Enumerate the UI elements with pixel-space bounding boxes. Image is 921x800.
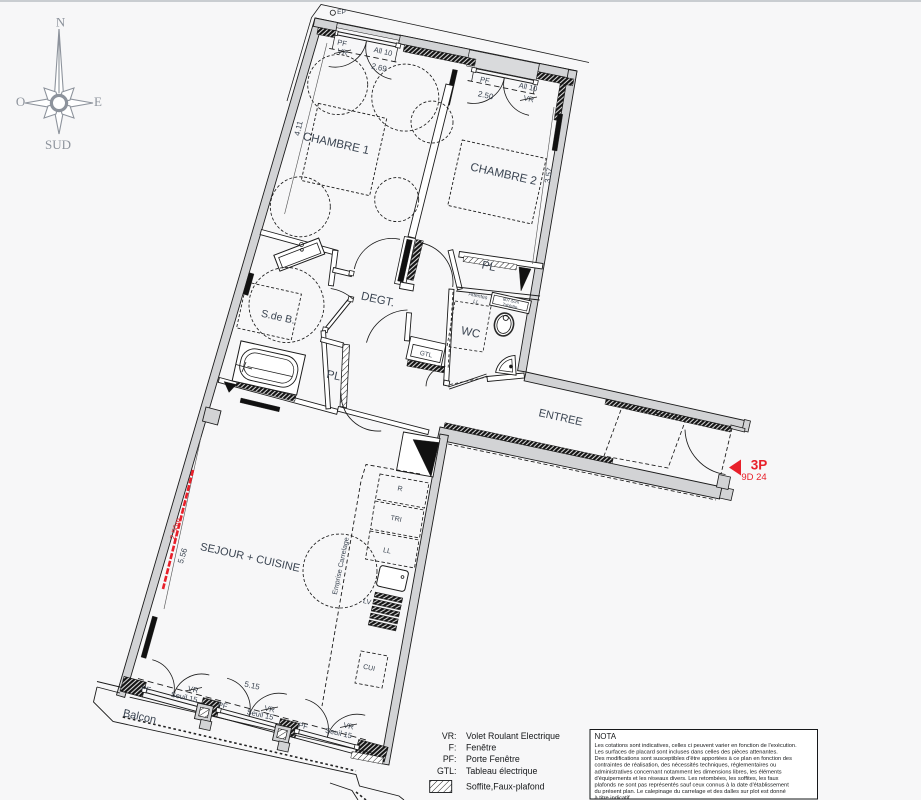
svg-text:9D 24: 9D 24 <box>741 472 766 483</box>
svg-text:Volet Roulant Electrique: Volet Roulant Electrique <box>466 731 560 741</box>
svg-text:3P: 3P <box>751 458 768 473</box>
svg-text:ENTREE: ENTREE <box>537 407 583 428</box>
svg-text:F:: F: <box>449 743 457 753</box>
svg-text:NOTA: NOTA <box>595 732 617 741</box>
svg-text:DEGT.: DEGT. <box>360 291 396 310</box>
svg-text:LL: LL <box>382 547 391 556</box>
svg-text:SEJOUR + CUISINE: SEJOUR + CUISINE <box>199 541 301 575</box>
svg-text:PL: PL <box>481 259 498 274</box>
svg-text:2.69: 2.69 <box>371 62 389 74</box>
svg-text:à titre indicatif.: à titre indicatif. <box>595 796 632 800</box>
svg-text:N: N <box>56 14 66 29</box>
svg-text:WC: WC <box>460 325 481 341</box>
svg-text:Les cotations sont indicatives: Les cotations sont indicatives, celles c… <box>595 743 798 749</box>
svg-text:TRI: TRI <box>390 515 403 524</box>
svg-text:Porte Fenêtre: Porte Fenêtre <box>466 754 520 764</box>
svg-text:Balcon: Balcon <box>122 707 157 726</box>
svg-text:S.de B.: S.de B. <box>260 308 296 327</box>
svg-text:Les surfaces de placard sont i: Les surfaces de placard sont incluses da… <box>595 750 779 756</box>
svg-text:E: E <box>94 94 102 109</box>
svg-text:5.15: 5.15 <box>244 680 262 692</box>
svg-text:d'équipements et les réseaux d: d'équipements et les réseaux divers. Les… <box>595 776 779 782</box>
svg-text:LV: LV <box>362 598 372 607</box>
svg-text:PF: PF <box>479 75 491 86</box>
svg-text:GTL:: GTL: <box>437 766 457 776</box>
svg-text:Des modifications sont suscept: Des modifications sont susceptibles d'êt… <box>595 756 793 762</box>
svg-text:plafonds ne sont pas représent: plafonds ne sont pas représentés sauf ce… <box>595 782 790 788</box>
svg-text:Fenêtre: Fenêtre <box>466 743 496 753</box>
svg-text:VR:: VR: <box>442 731 457 741</box>
svg-text:CHAMBRE 2: CHAMBRE 2 <box>469 161 538 188</box>
svg-text:EP: EP <box>337 9 346 16</box>
svg-text:CUI: CUI <box>362 664 375 673</box>
svg-text:5.56: 5.56 <box>176 547 189 565</box>
svg-text:R: R <box>397 485 403 493</box>
svg-text:Tableau électrique: Tableau électrique <box>466 766 538 776</box>
svg-text:PF:: PF: <box>443 754 457 764</box>
svg-text:SUD: SUD <box>45 137 71 152</box>
svg-text:administratives concernant not: administratives concernant notamment les… <box>595 769 782 775</box>
svg-text:contraintes de réalisation, de: contraintes de réalisation, des nécessit… <box>595 763 777 769</box>
svg-text:du présent plan. Le calepinage: du présent plan. Le calepinage du carrel… <box>595 789 786 795</box>
svg-text:All 10: All 10 <box>373 45 393 58</box>
svg-text:O: O <box>16 94 25 109</box>
svg-text:CHAMBRE 1: CHAMBRE 1 <box>302 130 371 157</box>
svg-text:Soffite,Faux-plafond: Soffite,Faux-plafond <box>466 781 545 791</box>
svg-text:2.50: 2.50 <box>477 89 495 101</box>
svg-text:Emprise Carrelage: Emprise Carrelage <box>332 537 351 596</box>
